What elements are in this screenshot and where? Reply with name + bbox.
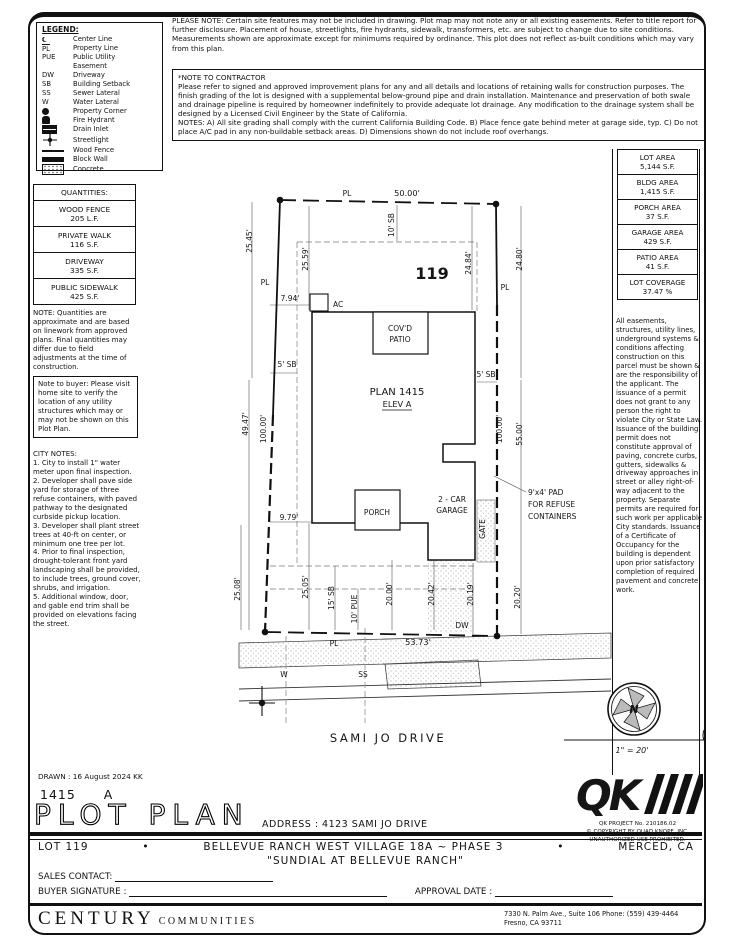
concrete-icon	[42, 164, 64, 175]
buyer-note: Note to buyer: Please visit home site to…	[33, 376, 138, 438]
lot-label: LOT 119	[38, 841, 89, 853]
city-notes: CITY NOTES: 1. City to install 1" water …	[33, 450, 143, 629]
water-lateral-label: W	[280, 670, 288, 679]
dim-20-00: 20.00'	[385, 582, 394, 606]
qk-logo-stripes	[644, 774, 703, 814]
legend-item: Property Corner	[42, 107, 162, 116]
quantity-row: DRIVEWAY335 S.F.	[33, 253, 136, 279]
setback-symbol: SB	[42, 80, 73, 88]
plot-plan-document: LEGEND: ℄Center Line PLProperty Line PUE…	[0, 0, 731, 945]
note-to-contractor: *NOTE TO CONTRACTOR Please refer to sign…	[172, 69, 705, 141]
contractor-note-body: Please refer to signed and approved impr…	[178, 82, 699, 118]
quantities-title: QUANTITIES:	[33, 184, 136, 201]
page-title: PLOT PLAN	[34, 798, 250, 831]
area-row: BLDG AREA1,415 S.F.	[617, 174, 698, 199]
covered-patio-label-1: COV'D	[388, 324, 412, 333]
dim-24-84: 24.84'	[464, 251, 473, 275]
legend: LEGEND: ℄Center Line PLProperty Line PUE…	[36, 22, 163, 171]
builder-name-2: COMMUNITIES	[159, 916, 257, 927]
dim-49-47: 49.47'	[241, 412, 250, 436]
lot-row: LOT 119 • BELLEVUE RANCH WEST VILLAGE 18…	[30, 841, 702, 853]
dim-sb-15: 15' SB	[327, 586, 336, 610]
dim-20-42: 20.42'	[427, 582, 436, 606]
subdivision-label: BELLEVUE RANCH WEST VILLAGE 18A ~ PHASE …	[203, 841, 503, 853]
dim-53-73: 53.73'	[405, 637, 431, 647]
area-row: LOT AREA5,144 S.F.	[617, 149, 698, 174]
lot-number: 119	[415, 264, 448, 283]
elevation-label: ELEV A	[383, 399, 412, 409]
bullet: •	[557, 841, 564, 853]
legend-item: PUEPublic Utility Easement	[42, 53, 162, 70]
dim-55-00: 55.00'	[515, 422, 524, 446]
refuse-pad-label-2: FOR REFUSE	[528, 500, 575, 509]
sales-contact-row: SALES CONTACT:	[38, 872, 273, 882]
builder-name: CENTURY	[38, 908, 155, 929]
ac-unit	[310, 294, 328, 311]
street-gutter-line	[239, 691, 611, 701]
area-table: LOT AREA5,144 S.F. BLDG AREA1,415 S.F. P…	[617, 149, 698, 300]
ac-label: AC	[333, 300, 343, 309]
area-row: PORCH AREA37 S.F.	[617, 199, 698, 224]
dim-9-79: 9.79'	[280, 513, 299, 522]
legend-item: DWDriveway	[42, 70, 162, 79]
contractor-note-list: NOTES: A) All site grading shall comply …	[178, 118, 699, 136]
dim-20-20: 20.20'	[513, 585, 522, 609]
legend-item: SBBuilding Setback	[42, 79, 162, 88]
dim-sb-5-right: 5' SB	[476, 370, 495, 379]
legend-title: LEGEND:	[42, 25, 162, 34]
wood-fence-icon	[42, 150, 64, 152]
address-line: ADDRESS : 4123 SAMI JO DRIVE	[262, 819, 427, 830]
approval-date-label: APPROVAL DATE :	[415, 887, 492, 897]
contractor-note-title: *NOTE TO CONTRACTOR	[178, 73, 699, 82]
dim-sb-10: 10' SB	[387, 213, 396, 237]
driveway-symbol: DW	[42, 71, 73, 79]
dim-24-80: 24.80'	[515, 247, 524, 271]
centerline-symbol: ℄	[42, 36, 73, 44]
quantity-row: PUBLIC SIDEWALK425 S.F.	[33, 279, 136, 305]
area-row: GARAGE AREA429 S.F.	[617, 224, 698, 249]
plan-label: PLAN 1415	[370, 387, 425, 398]
north-arrow-and-scale: N 1" = 20'	[558, 680, 706, 758]
please-note: PLEASE NOTE: Certain site features may n…	[172, 16, 705, 53]
buyer-signature-label: BUYER SIGNATURE :	[38, 887, 126, 897]
pue-symbol: PUE	[42, 53, 73, 61]
signature-row: BUYER SIGNATURE : APPROVAL DATE :	[38, 887, 702, 897]
city-notes-title: CITY NOTES:	[33, 450, 143, 459]
garage-label-2: GARAGE	[436, 506, 468, 515]
city-label: MERCED, CA	[618, 841, 694, 853]
drain-inlet-icon	[42, 125, 57, 134]
pl-label-top: PL	[343, 189, 353, 198]
bullet: •	[142, 841, 149, 853]
community-name: "SUNDIAL AT BELLEVUE RANCH"	[0, 855, 731, 867]
property-line-symbol: PL	[42, 45, 73, 53]
property-corner-icon	[42, 108, 49, 115]
pl-label-left: PL	[261, 278, 271, 287]
drawn-by: DRAWN : 16 August 2024 KK	[38, 772, 143, 781]
north-label: N	[629, 703, 638, 716]
svg-text:QK: QK	[576, 771, 645, 816]
footer-rule	[28, 903, 702, 906]
legend-item: SSSewer Lateral	[42, 89, 162, 98]
refuse-pad-label-3: CONTAINERS	[528, 512, 577, 521]
dw-label: DW	[455, 621, 469, 630]
legend-item: Fire Hydrant	[42, 116, 162, 125]
porch-label: PORCH	[364, 508, 390, 517]
covered-patio	[373, 312, 428, 354]
dim-25-45: 25.45'	[245, 229, 254, 253]
dim-lot-width: 50.00'	[394, 188, 420, 198]
legend-item: WWater Lateral	[42, 98, 162, 107]
qk-project-number: QK PROJECT No. 210186.02	[570, 820, 705, 828]
covered-patio-label-2: PATIO	[389, 335, 410, 344]
sales-contact-blank	[115, 872, 273, 882]
dim-sb-5-left: 5' SB	[277, 360, 296, 369]
scale-label: 1" = 20'	[616, 746, 649, 755]
quantity-row: PRIVATE WALK116 S.F.	[33, 227, 136, 253]
dim-20-19: 20.19'	[466, 582, 475, 606]
qk-logo: QK	[572, 770, 703, 816]
garage-label-1: 2 - CAR	[438, 495, 466, 504]
buyer-signature-blank	[129, 887, 387, 897]
dim-25-08: 25.08'	[233, 577, 242, 601]
gate-label: GATE	[478, 519, 487, 539]
easement-note: All easements, structures, utility lines…	[616, 317, 703, 595]
streetlight-icon	[42, 134, 58, 146]
legend-item: PLProperty Line	[42, 44, 162, 53]
sales-contact-label: SALES CONTACT:	[38, 872, 112, 882]
title-rule-thick	[28, 832, 702, 836]
builder-logo: CENTURY COMMUNITIES	[38, 908, 257, 930]
fire-hydrant-icon	[42, 116, 50, 124]
legend-item: Wood Fence	[42, 146, 162, 155]
pl-label-bottom: PL	[330, 639, 340, 648]
builder-address: 7330 N. Palm Ave., Suite 106 Phone: (559…	[504, 910, 694, 928]
sewer-symbol: SS	[42, 89, 73, 97]
pl-label-right: PL	[501, 283, 511, 292]
site-plan-drawing: PL 50.00' 10' SB 25.45' 25.59' 24.84' 24…	[225, 175, 615, 775]
block-wall-icon	[42, 157, 64, 162]
area-row: LOT COVERAGE37.47 %	[617, 274, 698, 300]
dim-pue-10: 10' PUE	[350, 594, 359, 623]
city-notes-body: 1. City to install 1" water meter upon f…	[33, 459, 143, 629]
title-rule-thin	[28, 839, 702, 840]
dim-7-94: 7.94'	[281, 294, 300, 303]
water-symbol: W	[42, 98, 73, 106]
sewer-lateral-label: SS	[358, 670, 368, 679]
legend-item: ℄Center Line	[42, 35, 162, 44]
approval-date-blank	[495, 887, 613, 897]
legend-item: Drain Inlet	[42, 125, 162, 134]
quantities-note: NOTE: Quantities are approximate and are…	[33, 309, 139, 372]
quantities-table: QUANTITIES: WOOD FENCE205 L.F. PRIVATE W…	[33, 184, 136, 305]
legend-item: Concrete	[42, 164, 162, 175]
area-row: PATIO AREA41 S.F.	[617, 249, 698, 274]
street-name: SAMI JO DRIVE	[330, 731, 446, 745]
refuse-pad-label-1: 9'x4' PAD	[528, 488, 564, 497]
legend-item: Streetlight	[42, 134, 162, 146]
dim-100-left: 100.00'	[259, 415, 268, 443]
legend-item: Block Wall	[42, 155, 162, 164]
dim-25-05: 25.05'	[301, 575, 310, 599]
quantity-row: WOOD FENCE205 L.F.	[33, 201, 136, 227]
dim-25-59: 25.59'	[301, 247, 310, 271]
footer: CENTURY COMMUNITIES 7330 N. Palm Ave., S…	[30, 907, 702, 930]
dim-100-right: 100.00'	[495, 415, 504, 443]
